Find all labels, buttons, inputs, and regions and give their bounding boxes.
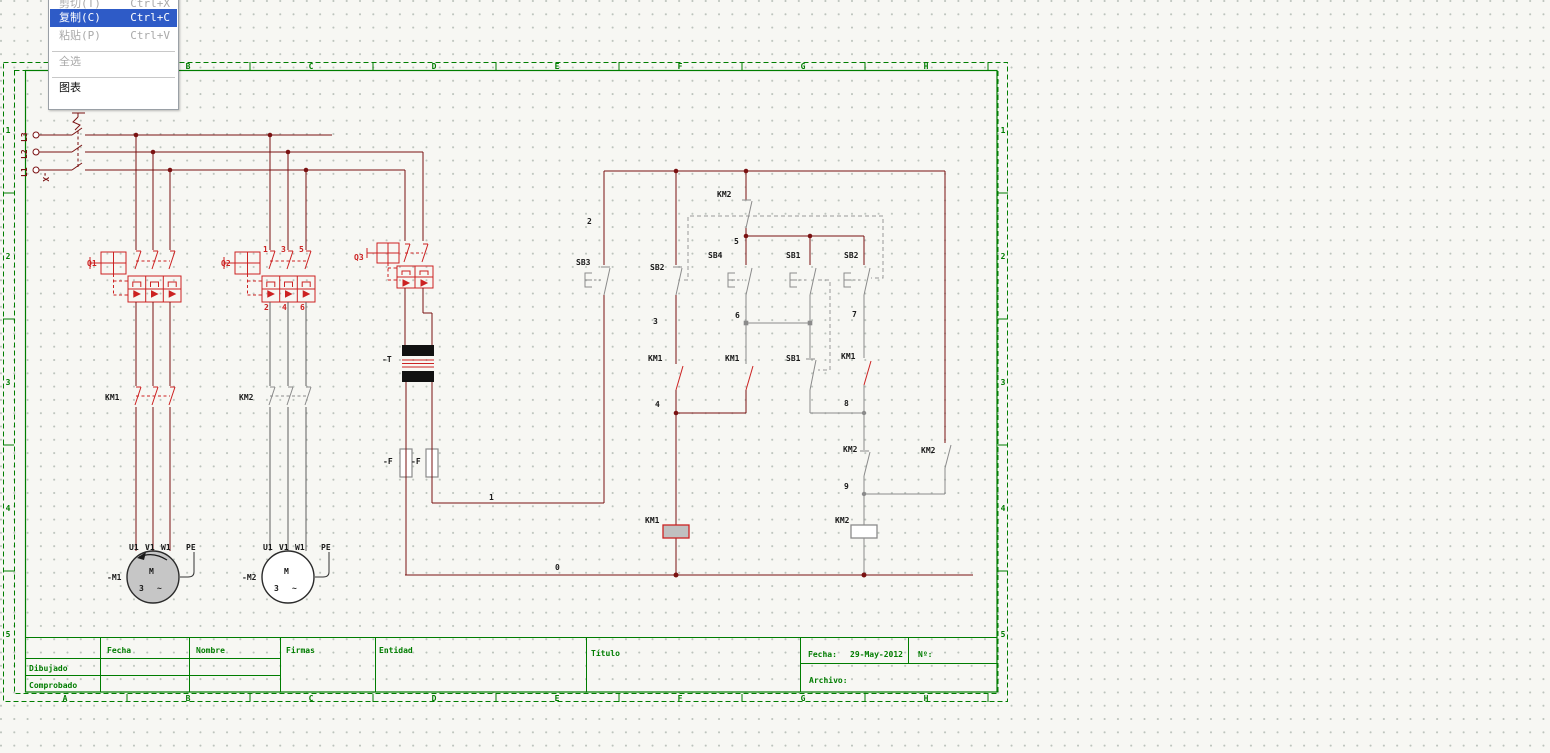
context-menu: 剪切(T)Ctrl+X复制(C)Ctrl+C粘贴(P)Ctrl+V全选图表 [48, 0, 179, 110]
schematic-label: W1 [295, 543, 305, 552]
km2-coil[interactable] [851, 525, 877, 538]
schematic-label: 8 [844, 399, 849, 408]
schematic-label: 9 [844, 482, 849, 491]
schematic-label: D [432, 694, 437, 703]
schematic-label: Título [591, 649, 620, 658]
schematic-label: KM1 [645, 516, 660, 525]
contact-km2-nc-top[interactable] [742, 200, 752, 228]
schematic-label: SB3 [576, 258, 591, 267]
schematic-label: E [555, 694, 560, 703]
schematic-label: -X [41, 172, 50, 182]
button-sb2-nc[interactable] [673, 267, 682, 295]
schematic-label: 2 [587, 217, 592, 226]
breaker-q1[interactable] [90, 135, 181, 386]
schematic-label: -F [411, 457, 421, 466]
button-sb1-nc[interactable] [806, 359, 816, 390]
schematic-label: U1 [263, 543, 273, 552]
breaker-q2[interactable] [224, 135, 315, 386]
schematic-label: ~ [157, 584, 162, 593]
mechanical-linkage-sb2 [684, 216, 883, 280]
transformer-t[interactable] [402, 345, 434, 382]
schematic-label: SB2 [844, 251, 859, 260]
schematic-label: -F [383, 457, 393, 466]
schematic-label: ~ [292, 584, 297, 593]
m1-feeder-wires [136, 407, 170, 551]
schematic-label: B [186, 62, 191, 71]
schematic-label: C [309, 694, 314, 703]
menu-item-全选[interactable]: 全选 [50, 53, 177, 71]
schematic-label: L3 [20, 132, 29, 142]
contact-km2-no-right[interactable] [945, 445, 951, 468]
schematic-label: Firmas [286, 645, 315, 655]
frame-zone-labels: AABBCCDDEEFFGGHH1122334455 [6, 62, 1006, 703]
sheet-frame [3, 62, 1008, 702]
schematic-label: SB1 [786, 354, 801, 363]
mechanical-linkage-sb1 [818, 280, 830, 370]
schematic-label: 3 [6, 378, 11, 387]
schematic-label: 4 [1001, 504, 1006, 513]
schematic-label: H [924, 694, 929, 703]
schematic-label: G [801, 62, 806, 71]
schematic-label: H [924, 62, 929, 71]
schematic-label: Dibujado [29, 663, 68, 673]
schematic-label: 3 [139, 584, 144, 593]
schematic-label: G [801, 694, 806, 703]
schematic-label: KM1 [648, 354, 663, 363]
schematic-label: PE [321, 543, 331, 552]
control-wires-gray [746, 295, 945, 575]
disconnect-switch-x[interactable] [33, 113, 423, 241]
schematic-label: KM2 [717, 190, 732, 199]
button-sb1-no[interactable] [790, 268, 816, 295]
schematic-label: 5 [734, 237, 739, 246]
menu-separator [52, 77, 175, 78]
schematic-canvas[interactable]: AABBCCDDEEFFGGHH1122334455 FechaNombreFi… [0, 0, 1550, 753]
schematic-label: B [186, 694, 191, 703]
schematic-label: 4 [655, 400, 660, 409]
schematic-label: L2 [20, 149, 29, 159]
schematic-label: 4 [282, 303, 287, 312]
schematic-label: C [309, 62, 314, 71]
menu-item-label: 全选 [59, 53, 81, 71]
contact-km1-aux-2[interactable] [746, 366, 753, 390]
schematic-label: 3 [653, 317, 658, 326]
schematic-label: 5 [1001, 630, 1006, 639]
schematic-label: Q2 [221, 259, 231, 268]
menu-item-label: 粘贴(P) [59, 27, 101, 45]
button-sb2-no[interactable] [844, 268, 870, 295]
schematic-label: Fecha [107, 646, 131, 655]
schematic-label: PE [186, 543, 196, 552]
schematic-label: KM1 [841, 352, 856, 361]
schematic-label: Archivo: [809, 675, 848, 685]
schematic-label: KM2 [921, 446, 936, 455]
schematic-label: -T [382, 355, 392, 364]
breaker-q3[interactable] [367, 243, 433, 345]
schematic-label: 29-May-2012 [850, 650, 903, 659]
schematic-label: 3 [274, 584, 279, 593]
button-sb3[interactable] [585, 267, 610, 295]
menu-item-label: 图表 [59, 79, 81, 97]
menu-separator [52, 51, 175, 52]
schematic-label: SB4 [708, 251, 723, 260]
schematic-label: Entidad [379, 645, 413, 655]
cad-application-canvas[interactable]: AABBCCDDEEFFGGHH1122334455 FechaNombreFi… [0, 0, 1550, 753]
menu-item-shortcut: Ctrl+V [130, 27, 170, 45]
schematic-label: 5 [299, 245, 304, 254]
schematic-label: KM2 [239, 393, 254, 402]
menu-item-Ctrl+V[interactable]: 粘贴(P)Ctrl+V [50, 27, 177, 45]
schematic-label: Comprobado [29, 681, 77, 690]
schematic-label: 1 [263, 245, 268, 254]
schematic-label: 2 [1001, 252, 1006, 261]
schematic-label: SB2 [650, 263, 665, 272]
schematic-label: 6 [300, 303, 305, 312]
contact-km2-nc-coil[interactable] [860, 451, 870, 476]
menu-item-label: 复制(C) [59, 9, 101, 27]
motor-m2[interactable] [262, 551, 329, 603]
contact-km1-aux-3[interactable] [864, 361, 871, 385]
schematic-label: KM1 [105, 393, 120, 402]
title-block [26, 637, 998, 692]
schematic-label: -M1 [107, 573, 122, 582]
schematic-label: Q3 [354, 253, 364, 262]
km1-power-contacts[interactable] [135, 387, 175, 405]
schematic-label: 5 [6, 630, 11, 639]
schematic-label: 3 [281, 245, 286, 254]
schematic-label: -M2 [242, 573, 257, 582]
title-block-labels: FechaNombreFirmasDibujadoComprobadoEntid… [29, 645, 932, 690]
m2-feeder-wires [270, 407, 306, 551]
schematic-label: F [678, 62, 683, 71]
schematic-label: 2 [6, 252, 11, 261]
schematic-label: 4 [6, 504, 11, 513]
schematic-label: M [284, 567, 289, 576]
schematic-label: F [678, 694, 683, 703]
schematic-label: SB1 [786, 251, 801, 260]
schematic-label: 3 [1001, 378, 1006, 387]
schematic-label: Q1 [87, 259, 97, 268]
motor-m1[interactable] [127, 551, 194, 603]
menu-item-Ctrl+C[interactable]: 复制(C)Ctrl+C [50, 9, 177, 27]
junction-dots [134, 133, 867, 578]
schematic-label: V1 [145, 543, 155, 552]
schematic-label: M [149, 567, 154, 576]
schematic-label: 7 [852, 310, 857, 319]
schematic-label: 6 [735, 311, 740, 320]
km1-coil[interactable] [663, 525, 689, 538]
menu-item-图表[interactable]: 图表 [50, 79, 177, 97]
schematic-label: U1 [129, 543, 139, 552]
schematic-label: KM2 [835, 516, 850, 525]
contact-km1-aux-1[interactable] [676, 366, 683, 390]
schematic-label: W1 [161, 543, 171, 552]
schematic-label: 2 [264, 303, 269, 312]
schematic-label: E [555, 62, 560, 71]
schematic-label: L1 [20, 167, 29, 177]
schematic-label: D [432, 62, 437, 71]
control-wires-live [405, 171, 973, 575]
schematic-label: 1 [489, 493, 494, 502]
schematic-label: KM2 [843, 445, 858, 454]
schematic-label: KM1 [725, 354, 740, 363]
control-supply-wires [406, 382, 604, 575]
schematic-label: 1 [1001, 126, 1006, 135]
schematic-label: Nº: [918, 650, 932, 659]
schematic-label: 1 [6, 126, 11, 135]
menu-item-shortcut: Ctrl+C [130, 9, 170, 27]
schematic-label: V1 [279, 543, 289, 552]
schematic-label: Fecha: [808, 650, 837, 659]
schematic-label: A [63, 694, 68, 703]
km2-power-contacts[interactable] [269, 387, 311, 405]
schematic-labels: L3L2L1-XQ1Q2Q3135246KM1KM2-T-F-FU1V1W1PE… [20, 132, 936, 593]
schematic-label: Nombre [196, 646, 225, 655]
button-sb4[interactable] [728, 268, 752, 295]
schematic-label: 0 [555, 563, 560, 572]
